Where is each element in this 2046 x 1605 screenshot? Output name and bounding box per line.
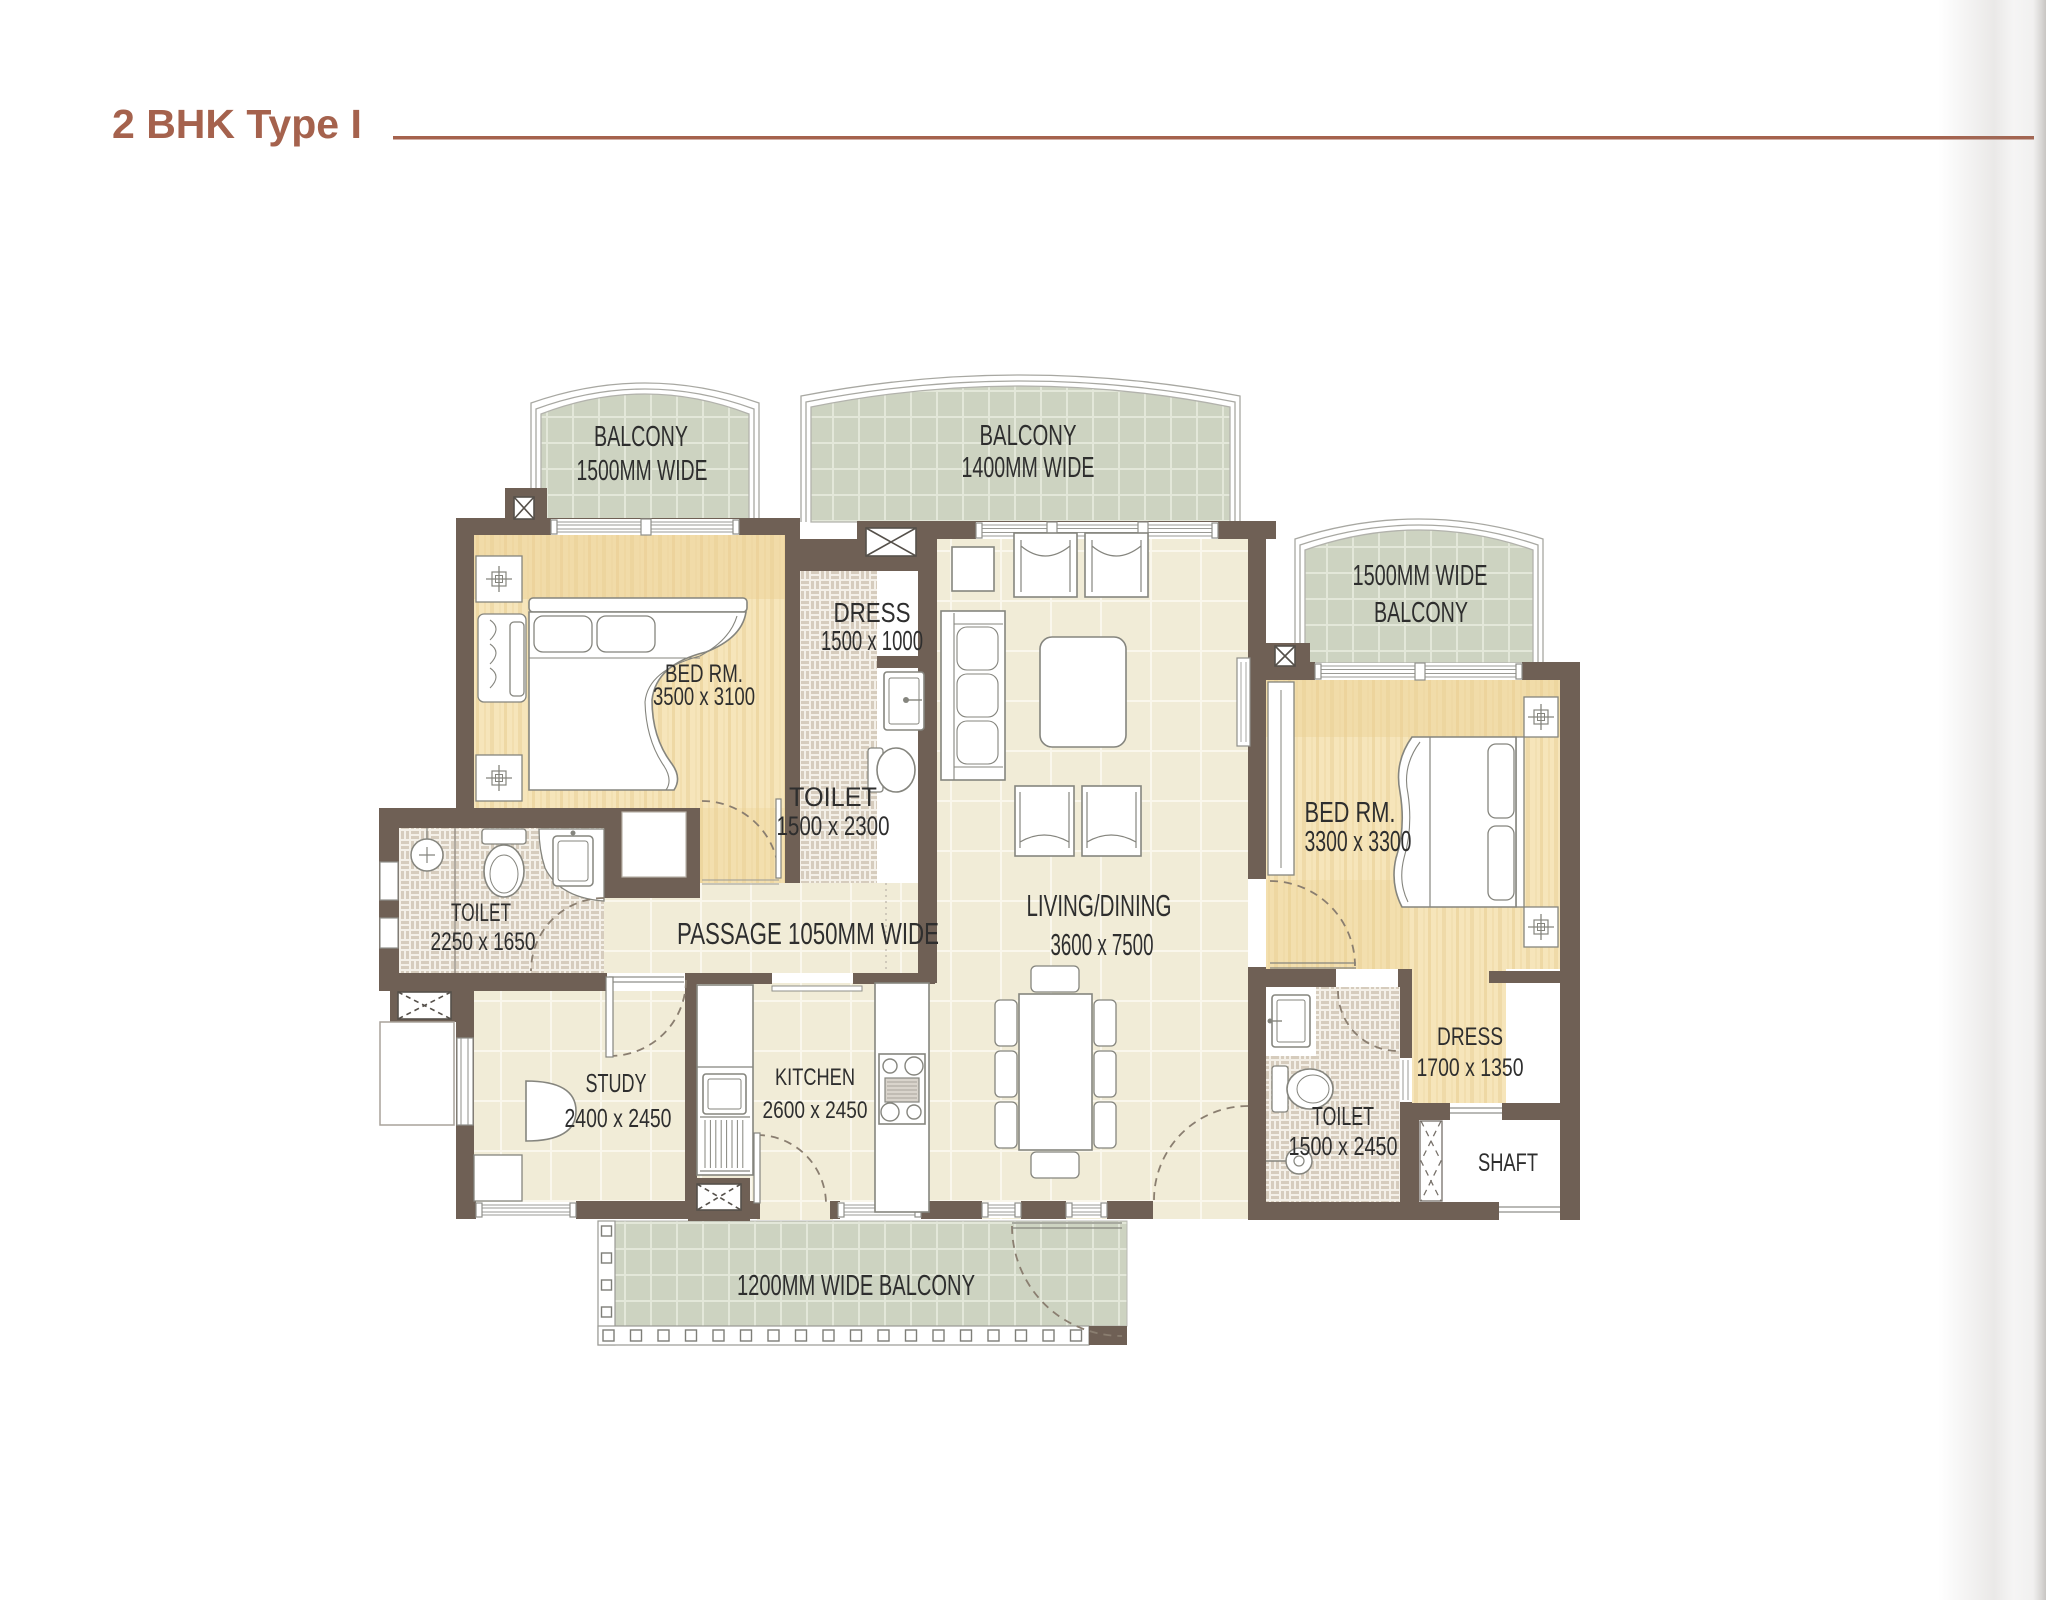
svg-text:DRESS: DRESS — [834, 597, 911, 628]
svg-text:1500 x 2450: 1500 x 2450 — [1289, 1131, 1398, 1161]
svg-text:3500 x 3100: 3500 x 3100 — [653, 683, 755, 711]
svg-text:TOILET: TOILET — [1312, 1101, 1374, 1131]
svg-text:TOILET: TOILET — [451, 899, 511, 927]
svg-text:BALCONY: BALCONY — [980, 420, 1077, 452]
svg-text:3600 x 7500: 3600 x 7500 — [1051, 927, 1154, 962]
svg-text:1500 x 2300: 1500 x 2300 — [777, 811, 890, 841]
svg-text:2600 x 2450: 2600 x 2450 — [763, 1097, 868, 1124]
svg-text:1400MM WIDE: 1400MM WIDE — [962, 452, 1095, 484]
svg-text:LIVING/DINING: LIVING/DINING — [1027, 888, 1172, 923]
svg-text:PASSAGE 1050MM WIDE: PASSAGE 1050MM WIDE — [677, 916, 939, 951]
svg-text:1500MM WIDE: 1500MM WIDE — [1353, 560, 1488, 592]
svg-text:1700 x 1350: 1700 x 1350 — [1417, 1054, 1524, 1082]
svg-text:1500 x 1000: 1500 x 1000 — [821, 625, 923, 656]
svg-text:3300 x 3300: 3300 x 3300 — [1305, 826, 1412, 858]
svg-text:BED RM.: BED RM. — [1305, 797, 1396, 829]
svg-text:STUDY: STUDY — [586, 1068, 647, 1098]
svg-text:1500MM WIDE: 1500MM WIDE — [577, 455, 708, 487]
svg-text:TOILET: TOILET — [789, 782, 877, 812]
svg-text:2400 x 2450: 2400 x 2450 — [565, 1103, 672, 1133]
svg-text:KITCHEN: KITCHEN — [775, 1064, 855, 1091]
svg-text:BALCONY: BALCONY — [594, 421, 688, 453]
svg-text:BALCONY: BALCONY — [1374, 597, 1468, 629]
svg-text:2 BHK Type I: 2 BHK Type I — [112, 101, 362, 147]
svg-text:2250 x 1650: 2250 x 1650 — [431, 928, 536, 956]
svg-text:DRESS: DRESS — [1437, 1023, 1503, 1051]
svg-text:1200MM WIDE BALCONY: 1200MM WIDE BALCONY — [737, 1270, 975, 1302]
svg-text:SHAFT: SHAFT — [1478, 1149, 1538, 1177]
